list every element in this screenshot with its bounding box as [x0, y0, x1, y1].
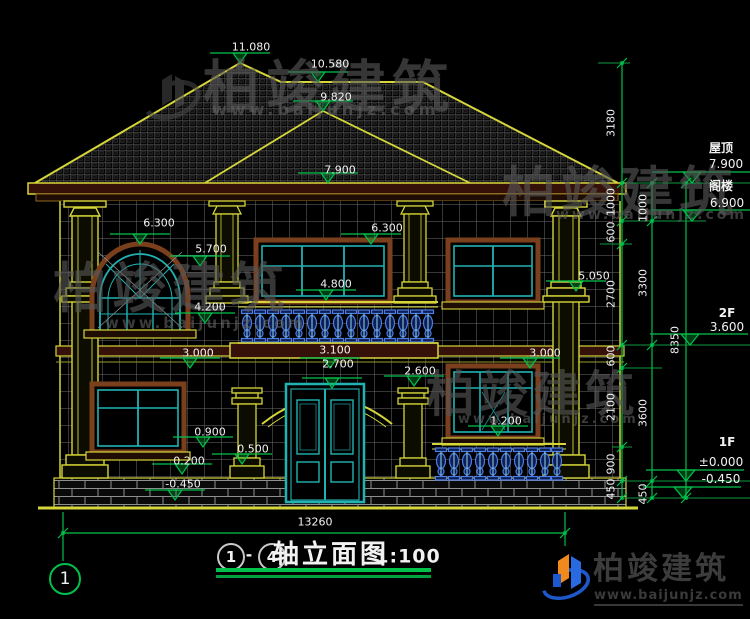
- attic-level-value: 6.900: [710, 197, 744, 209]
- brand-name: 柏竣建筑: [593, 554, 729, 585]
- dim-label: 450: [606, 479, 617, 500]
- floor2-label: 2F: [719, 307, 736, 319]
- axis-bubble: 1: [49, 563, 81, 595]
- floor2-value: 3.600: [710, 321, 744, 333]
- floor1-below-value: -0.450: [702, 473, 741, 485]
- elevation-label: 3.100: [319, 345, 351, 356]
- elevation-label: 0.900: [194, 427, 226, 438]
- overall-width-dim: 13260: [298, 517, 333, 528]
- dim-label: 600: [606, 346, 617, 367]
- attic-level-label: 阁楼: [709, 180, 733, 192]
- elevation-label: 4.800: [320, 279, 352, 290]
- dim-label: 900: [606, 454, 617, 475]
- roof-level-label: 屋顶: [709, 142, 733, 154]
- elevation-label: 6.300: [143, 218, 175, 229]
- elevation-label: 1.200: [490, 416, 522, 427]
- elevation-label: -0.450: [165, 479, 200, 490]
- elevation-label: 5.700: [195, 244, 227, 255]
- elevation-label: 4.200: [194, 302, 226, 313]
- dim-label: 2100: [606, 393, 617, 421]
- title-underline: [216, 575, 431, 578]
- dim-label: 1000: [606, 188, 617, 216]
- floor1-zero-value: ±0.000: [699, 456, 743, 468]
- elevation-label: 2.700: [322, 359, 354, 370]
- floor1-label: 1F: [719, 436, 736, 448]
- title-axis-from-bubble: 1: [217, 543, 245, 571]
- elevation-label: 2.600: [404, 366, 436, 377]
- title-axis-from: 1: [226, 548, 236, 566]
- elevation-label: 3.000: [182, 348, 214, 359]
- annotation-layer: 11.080 10.580 9.820 7.900 6.300 5.700 6.…: [0, 0, 750, 619]
- elevation-label: 0.200: [173, 456, 205, 467]
- dim-label: 8350: [670, 326, 681, 354]
- elevation-label: 6.300: [371, 223, 403, 234]
- elevation-label: 7.900: [324, 165, 356, 176]
- elevation-label: 0.500: [237, 444, 269, 455]
- dim-label: 600: [606, 222, 617, 243]
- elevation-label: 9.820: [320, 92, 352, 103]
- dim-label: 450: [638, 484, 649, 505]
- dim-label: 1000: [638, 194, 649, 222]
- axis-bubble-number: 1: [60, 569, 71, 589]
- drawing-title: 轴立面图: [273, 542, 389, 568]
- elevation-label: 11.080: [232, 42, 271, 53]
- drawing-scale: 1:100: [375, 548, 440, 567]
- dim-label: 2700: [606, 280, 617, 308]
- dim-label: 3180: [606, 109, 617, 137]
- brand-url: www.baijunjz.com: [594, 588, 743, 606]
- elevation-label: 10.580: [311, 59, 350, 70]
- cad-elevation-screenshot: 柏竣建筑 www.baijunjz.com 柏竣建筑 www.baijunjz.…: [0, 0, 750, 619]
- elevation-label: 3.000: [529, 348, 561, 359]
- roof-level-value: 7.900: [709, 158, 743, 170]
- dim-label: 3300: [638, 269, 649, 297]
- dim-label: 3600: [638, 399, 649, 427]
- title-underline: [216, 568, 431, 572]
- title-dash: -: [246, 547, 253, 563]
